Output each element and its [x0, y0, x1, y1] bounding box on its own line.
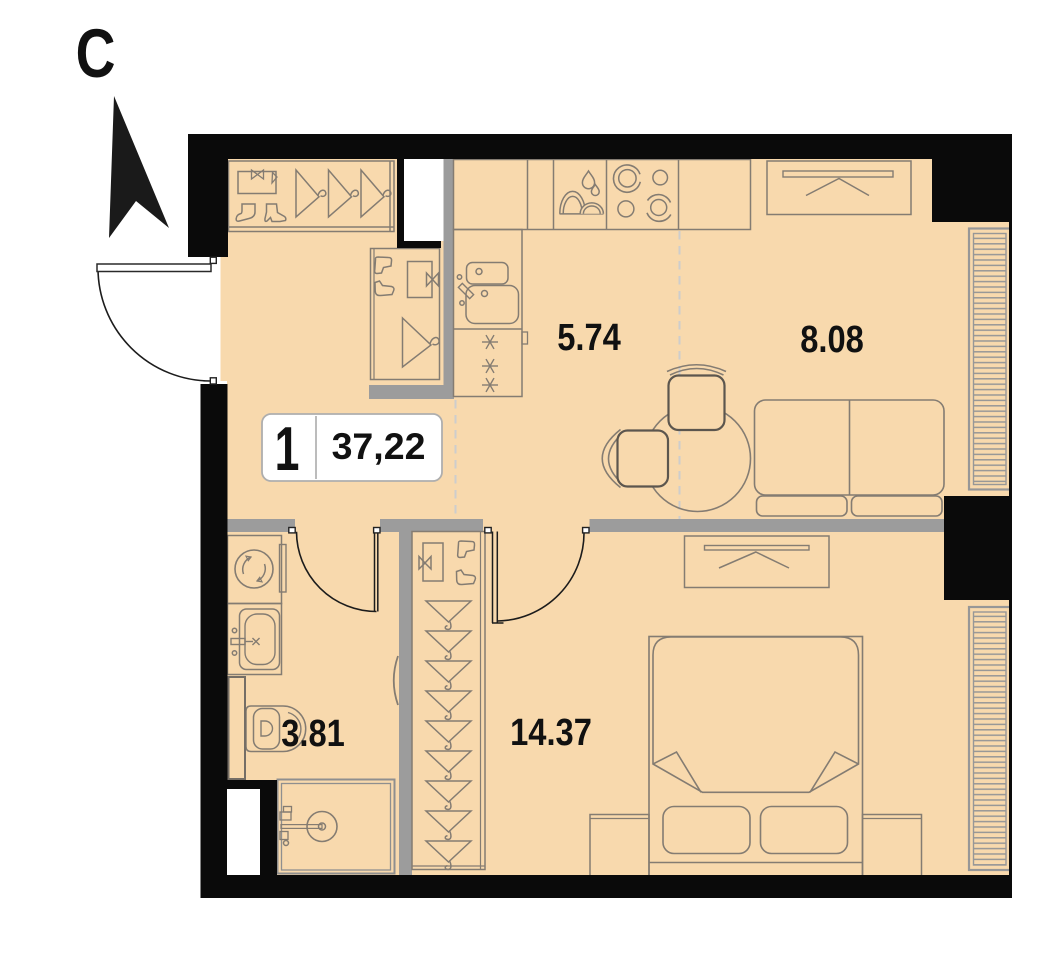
- svg-text:5.74: 5.74: [557, 316, 621, 359]
- svg-text:14.37: 14.37: [510, 711, 592, 754]
- svg-text:3.81: 3.81: [281, 712, 345, 755]
- svg-text:37,22: 37,22: [332, 425, 426, 467]
- svg-text:1: 1: [275, 415, 300, 484]
- svg-text:C: C: [76, 15, 116, 92]
- svg-text:8.08: 8.08: [800, 318, 864, 361]
